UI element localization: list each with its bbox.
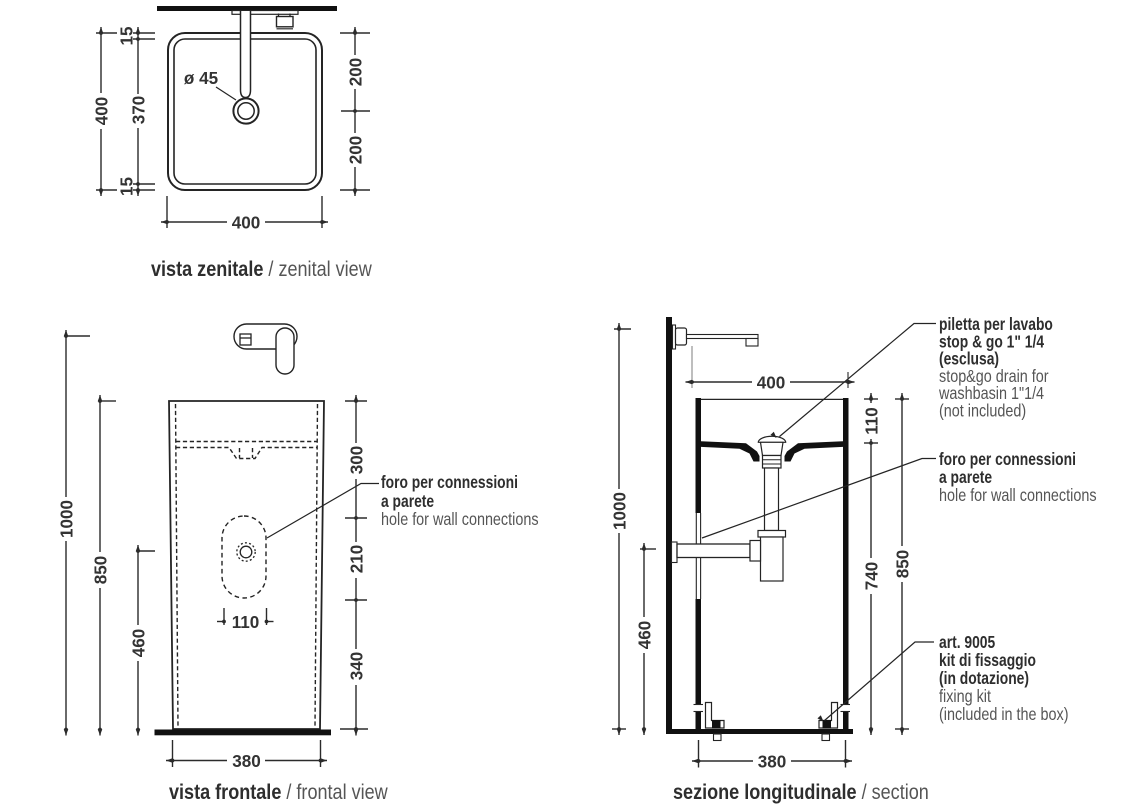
svg-text:(in dotazione): (in dotazione) xyxy=(939,668,1029,688)
svg-text:110: 110 xyxy=(232,612,260,633)
svg-text:(included in the box): (included in the box) xyxy=(939,705,1069,725)
svg-text:370: 370 xyxy=(128,96,149,125)
svg-text:200: 200 xyxy=(345,136,366,165)
svg-text:15: 15 xyxy=(116,177,137,196)
svg-text:hole for wall connections: hole for wall connections xyxy=(939,486,1097,506)
svg-text:ø 45: ø 45 xyxy=(184,68,218,89)
svg-text:400: 400 xyxy=(757,372,786,393)
svg-text:a parete: a parete xyxy=(939,467,992,487)
svg-text:1000: 1000 xyxy=(609,492,630,530)
svg-text:hole for wall connections: hole for wall connections xyxy=(381,510,539,530)
svg-text:foro per connessioni: foro per connessioni xyxy=(381,472,518,492)
svg-text:460: 460 xyxy=(128,629,149,658)
svg-text:850: 850 xyxy=(892,550,913,579)
svg-text:380: 380 xyxy=(232,751,261,772)
svg-text:460: 460 xyxy=(634,621,655,650)
svg-text:vista frontale / frontal view: vista frontale / frontal view xyxy=(169,781,389,805)
svg-text:380: 380 xyxy=(758,751,787,772)
svg-text:fixing kit: fixing kit xyxy=(939,687,991,707)
svg-text:(not included): (not included) xyxy=(939,401,1026,421)
svg-text:sezione longitudinale / sectio: sezione longitudinale / section xyxy=(673,781,929,805)
svg-text:300: 300 xyxy=(346,446,367,475)
svg-text:a parete: a parete xyxy=(381,491,434,511)
svg-text:740: 740 xyxy=(861,562,882,591)
svg-text:110: 110 xyxy=(861,407,882,435)
svg-text:340: 340 xyxy=(346,652,367,681)
svg-text:1000: 1000 xyxy=(56,500,77,538)
svg-text:400: 400 xyxy=(232,212,261,233)
svg-text:vista zenitale / zenital view: vista zenitale / zenital view xyxy=(151,258,373,282)
svg-text:850: 850 xyxy=(90,556,111,585)
svg-text:200: 200 xyxy=(345,58,366,87)
svg-text:210: 210 xyxy=(346,545,367,574)
svg-text:15: 15 xyxy=(116,26,137,45)
svg-text:400: 400 xyxy=(91,97,112,126)
